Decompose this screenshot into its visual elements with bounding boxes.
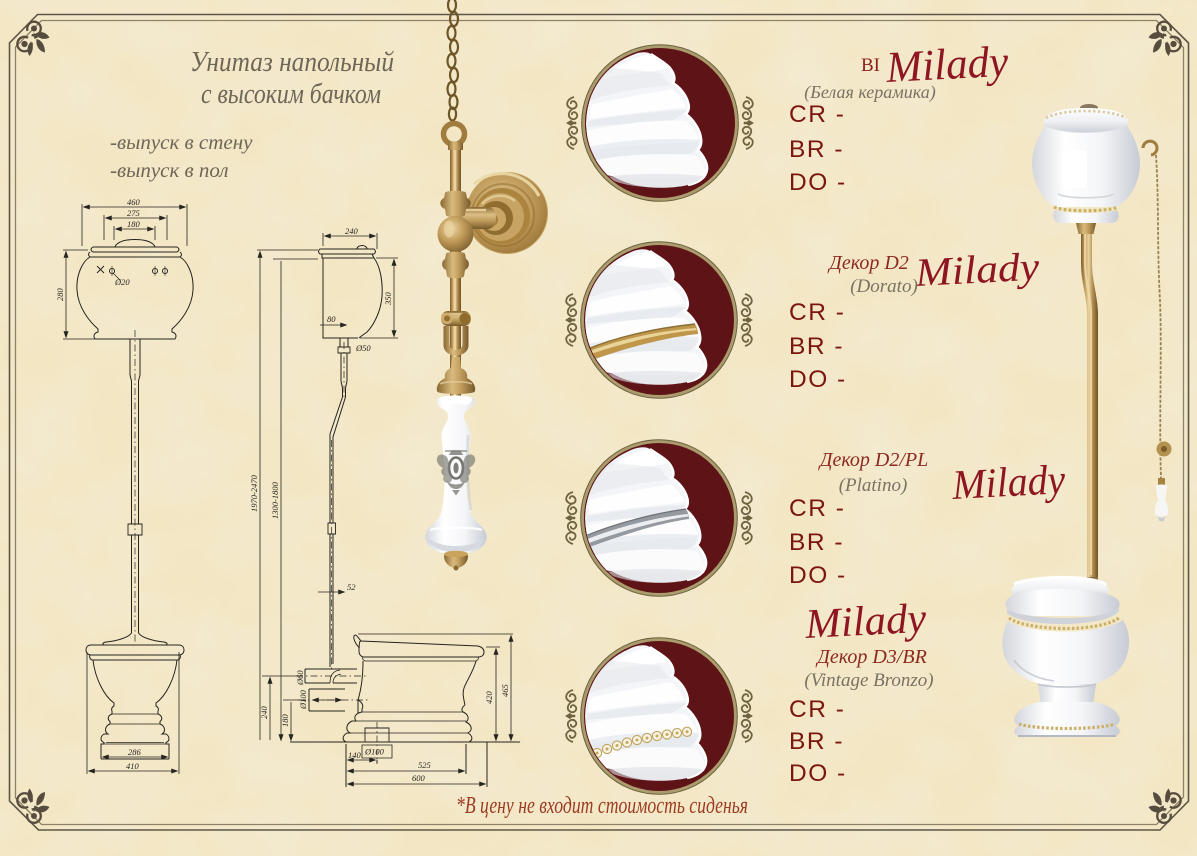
svg-text:275: 275 bbox=[127, 208, 140, 218]
svg-text:80: 80 bbox=[327, 314, 336, 324]
svg-text:1970-2470: 1970-2470 bbox=[249, 474, 259, 512]
svg-text:Декор D3/BR: Декор D3/BR bbox=[815, 646, 927, 668]
svg-text:180: 180 bbox=[127, 219, 141, 229]
svg-text:1300-1800: 1300-1800 bbox=[270, 481, 280, 519]
svg-text:Milady: Milady bbox=[913, 244, 1041, 295]
svg-text:DO -: DO - bbox=[789, 366, 847, 393]
svg-text:с высоким бачком: с высоким бачком bbox=[201, 79, 381, 110]
svg-text:240: 240 bbox=[259, 706, 269, 720]
svg-text:BR -: BR - bbox=[789, 728, 844, 755]
svg-text:465: 465 bbox=[500, 684, 510, 697]
svg-text:DO -: DO - bbox=[789, 760, 847, 787]
svg-text:Ø100: Ø100 bbox=[298, 689, 308, 710]
svg-text:600: 600 bbox=[412, 773, 426, 783]
svg-text:460: 460 bbox=[127, 197, 141, 207]
svg-text:525: 525 bbox=[418, 760, 431, 770]
svg-text:*В цену не входит стоимость си: *В цену не входит стоимость сиденья bbox=[456, 793, 748, 819]
svg-text:140: 140 bbox=[348, 750, 362, 760]
svg-text:420: 420 bbox=[484, 691, 494, 705]
svg-text:350: 350 bbox=[383, 292, 393, 307]
svg-text:(Platino): (Platino) bbox=[839, 475, 908, 496]
svg-text:DO -: DO - bbox=[789, 169, 847, 196]
svg-text:Унитаз напольный: Унитаз напольный bbox=[190, 47, 394, 78]
svg-text:Ø100: Ø100 bbox=[364, 747, 385, 757]
svg-text:DO -: DO - bbox=[789, 562, 847, 589]
svg-text:Декор D2: Декор D2 bbox=[827, 252, 909, 274]
svg-text:(Dorato): (Dorato) bbox=[850, 276, 918, 297]
svg-text:BR -: BR - bbox=[789, 136, 844, 163]
svg-text:(Vintage Bronzo): (Vintage Bronzo) bbox=[804, 670, 933, 691]
svg-text:52: 52 bbox=[347, 582, 356, 592]
svg-text:CR -: CR - bbox=[789, 299, 845, 326]
svg-text:BR -: BR - bbox=[789, 529, 844, 556]
svg-text:BI: BI bbox=[861, 55, 880, 76]
svg-text:Декор D2/PL: Декор D2/PL bbox=[818, 449, 929, 471]
svg-text:CR -: CR - bbox=[789, 696, 845, 723]
svg-text:Milady: Milady bbox=[803, 596, 928, 648]
svg-text:Milady: Milady bbox=[950, 457, 1067, 509]
svg-text:280: 280 bbox=[55, 288, 65, 302]
svg-text:Ø60: Ø60 bbox=[295, 670, 305, 686]
svg-text:CR -: CR - bbox=[789, 101, 845, 128]
svg-text:180: 180 bbox=[280, 714, 290, 728]
svg-text:CR -: CR - bbox=[789, 495, 845, 522]
svg-text:240: 240 bbox=[345, 226, 359, 236]
svg-text:410: 410 bbox=[126, 761, 140, 771]
svg-text:BR -: BR - bbox=[789, 333, 844, 360]
svg-text:286: 286 bbox=[128, 747, 142, 757]
svg-text:Ø50: Ø50 bbox=[355, 343, 371, 353]
svg-text:(Белая керамика): (Белая керамика) bbox=[804, 82, 936, 103]
svg-text:Ø20: Ø20 bbox=[114, 277, 130, 287]
svg-text:-выпуск в пол: -выпуск в пол bbox=[110, 158, 229, 182]
svg-text:-выпуск в стену: -выпуск в стену bbox=[110, 130, 253, 154]
